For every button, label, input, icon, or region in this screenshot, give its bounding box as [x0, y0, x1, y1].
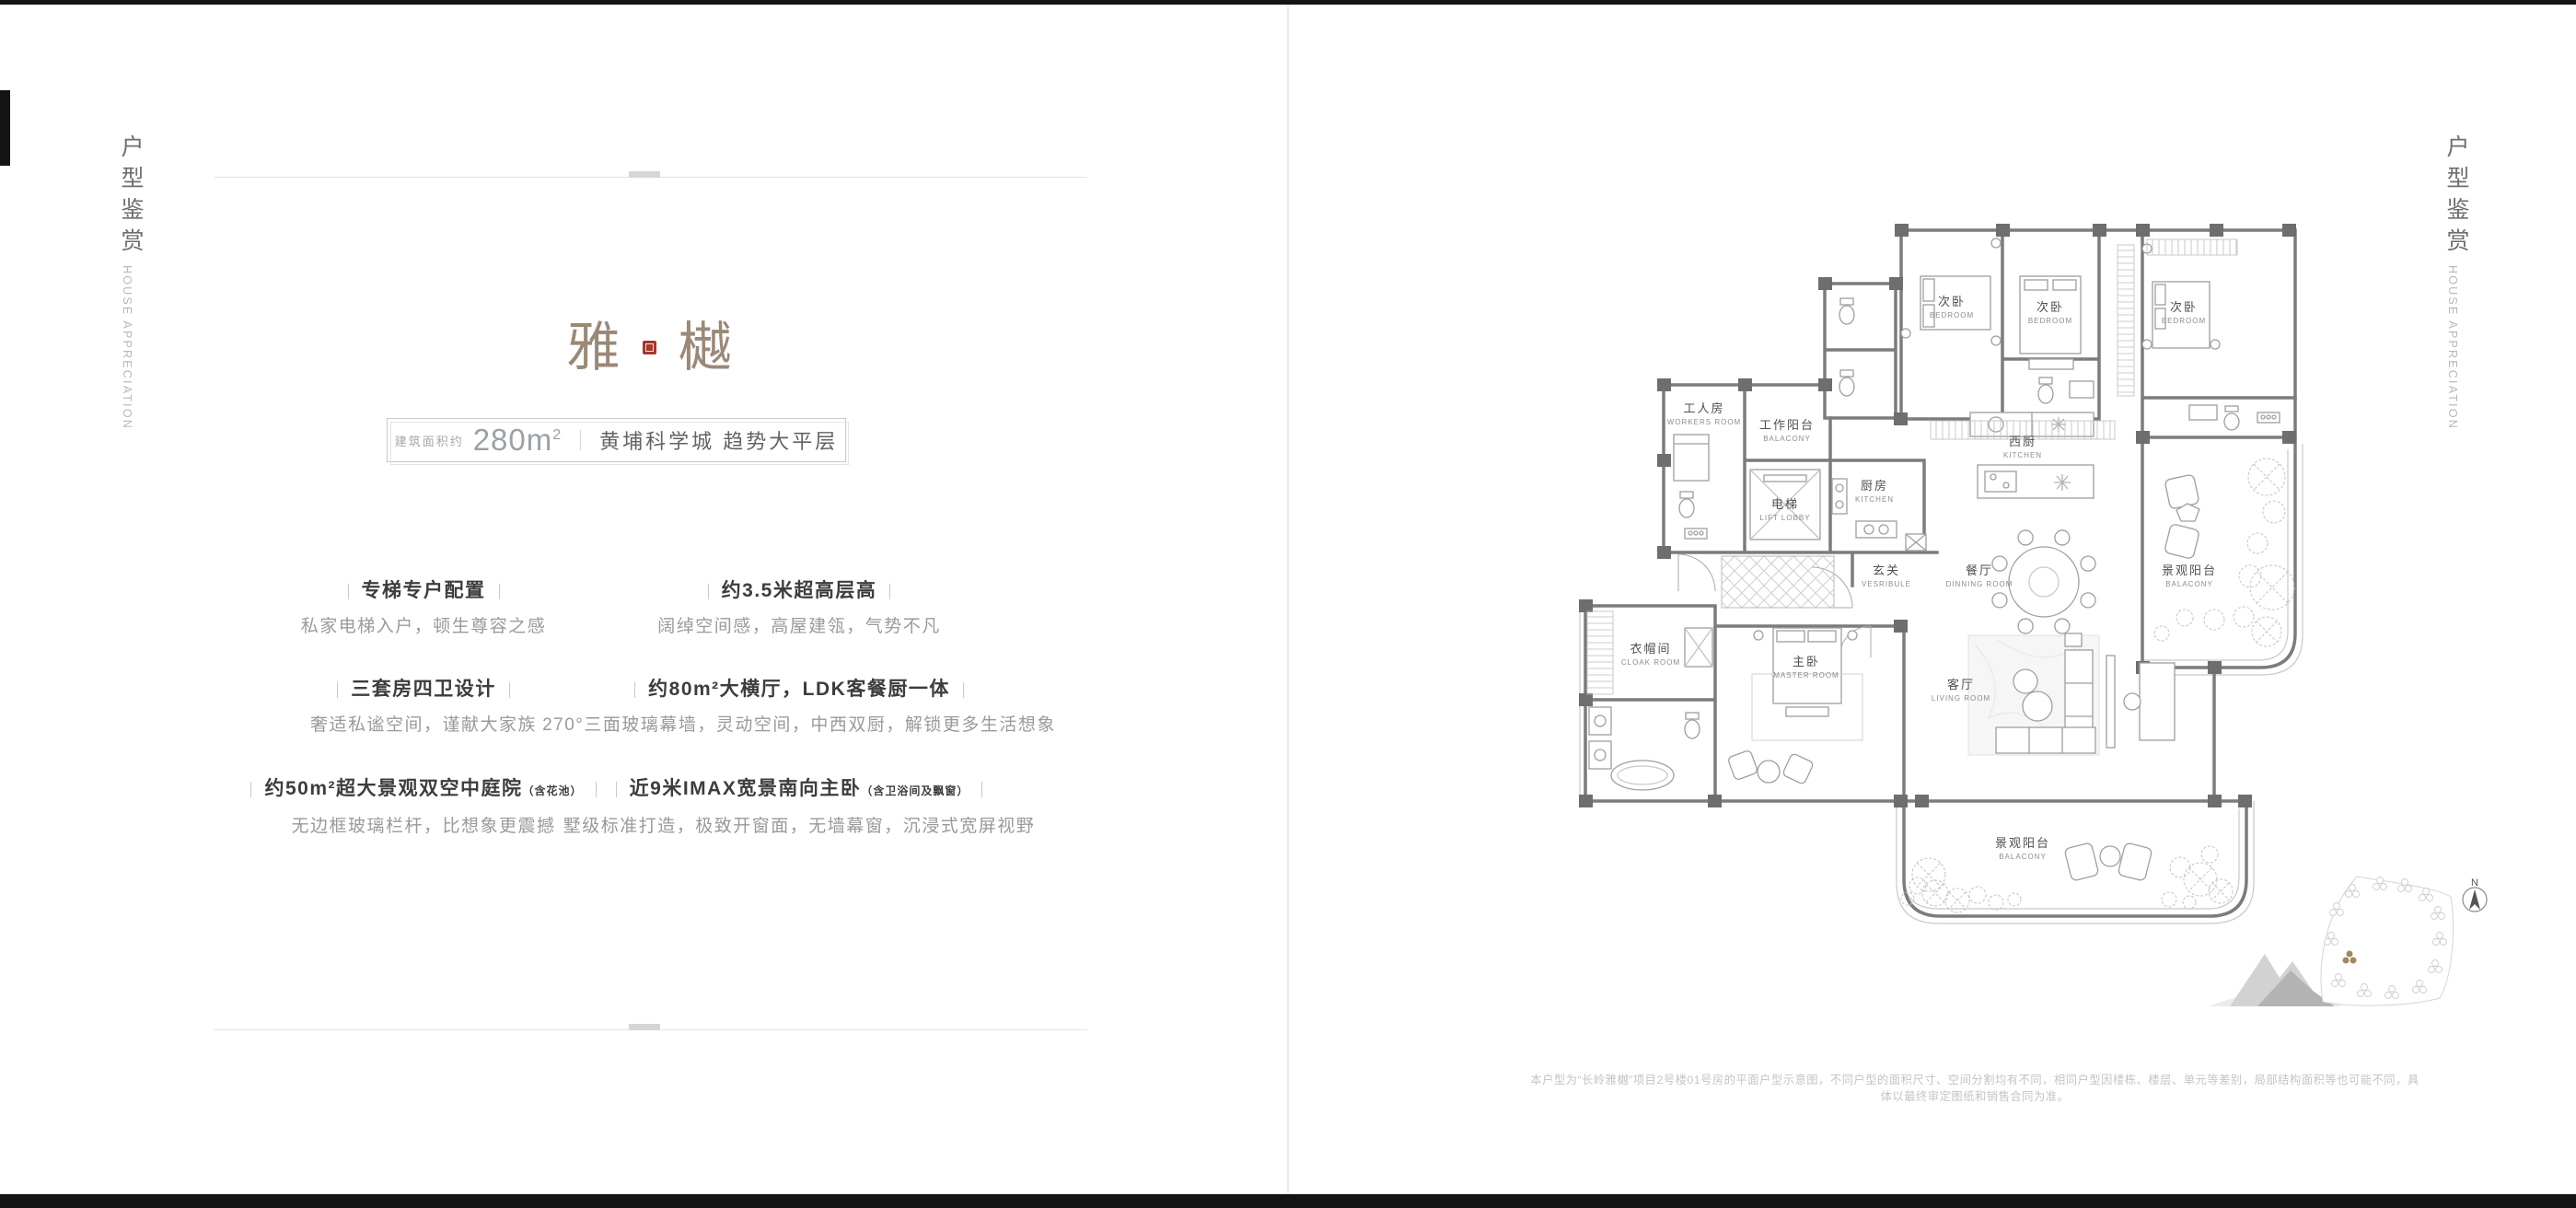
badge-location: 黄埔科学城 趋势大平层: [599, 425, 838, 455]
room-label: 厨房: [1861, 479, 1888, 493]
left-sidebar-title: 户型鉴赏: [114, 134, 147, 260]
compass-needle: [2469, 889, 2480, 910]
room-label-en: CLOAK ROOM: [1621, 658, 1680, 667]
area-label: 建筑面积约: [395, 432, 464, 449]
title-char-right: 樾: [679, 320, 732, 374]
room-label: 景观阳台: [1995, 836, 2050, 850]
feature-desc: 270°三面玻璃幕墙，灵动空间，中西双厨，解锁更多生活想象: [523, 711, 1075, 736]
room-label-en: LIFT LOBBY: [1759, 514, 1810, 522]
page-gutter-divider: [1287, 5, 1289, 1194]
room-label-en: MASTER ROOM: [1773, 671, 1839, 679]
room-label: 衣帽间: [1630, 642, 1671, 656]
room-label-en: DINNING ROOM: [1946, 580, 2013, 588]
bottom-rule-tab: [629, 1024, 660, 1030]
room-label: 次卧: [2170, 300, 2198, 314]
brochure-spread: 户型鉴赏 HOUSE APPRECIATION 户型鉴赏 HOUSE APPRE…: [0, 0, 2576, 1208]
left-sidebar-subtitle: HOUSE APPRECIATION: [121, 265, 133, 430]
room-label-en: BALACONY: [1999, 853, 2047, 861]
room-label-en: KITCHEN: [2003, 451, 2042, 459]
room-label-en: BEDROOM: [2162, 317, 2206, 325]
feature-suffix: （含卫浴间及飘窗）: [861, 784, 969, 797]
room-label: 工人房: [1683, 401, 1724, 415]
vestibule-rug: [1722, 556, 1834, 608]
seal-icon: [643, 341, 656, 354]
top-rule-tab: [629, 171, 660, 178]
feature-title: 近9米IMAX宽景南向主卧: [630, 778, 862, 799]
feature-title: 约80m²大横厅，LDK客餐厨一体: [648, 679, 950, 700]
room-label-en: BEDROOM: [2028, 317, 2072, 325]
title-char-left: 雅: [566, 320, 620, 374]
room-label: 餐厅: [1966, 563, 1993, 577]
floor-plan: N 次卧BEDROOM次卧BEDROOM次卧BEDROOM工人房WORKERS …: [1565, 203, 2495, 1077]
feature-title: 专梯专户配置: [362, 580, 486, 601]
page-title: 雅 樾: [502, 320, 796, 374]
feature-desc: 墅级标准打造，极致开窗面，无墙幕窗，沉浸式宽屏视野: [523, 812, 1075, 837]
room-label-en: WORKERS ROOM: [1667, 418, 1741, 426]
room-label: 景观阳台: [2162, 563, 2217, 577]
room-label-en: BALACONY: [2165, 580, 2213, 588]
area-value: 280m2: [473, 423, 562, 458]
feature-block: 近9米IMAX宽景南向主卧（含卫浴间及飘窗） 墅级标准打造，极致开窗面，无墙幕窗…: [523, 778, 1075, 837]
compass-north-label: N: [2471, 877, 2478, 889]
feature-title: 约3.5米超高层高: [722, 580, 877, 601]
room-label: 主卧: [1793, 655, 1820, 668]
room-label-en: KITCHEN: [1855, 495, 1894, 504]
room-label-en: VESRIBULE: [1862, 580, 1911, 588]
room-label: 次卧: [1938, 295, 1966, 308]
room-label: 客厅: [1947, 678, 1975, 691]
room-label-en: BEDROOM: [1930, 311, 1974, 319]
left-edge-tab: [0, 90, 10, 166]
room-label: 玄关: [1873, 563, 1900, 577]
furniture: [1589, 238, 2280, 881]
feature-desc: 阔绰空间感，高屋建瓴，气势不凡: [523, 612, 1075, 637]
bottom-border-bar: [0, 1194, 2576, 1208]
room-label: 次卧: [2036, 300, 2064, 314]
feature-title: 三套房四卫设计: [351, 679, 496, 700]
area-badge: 建筑面积约 280m2 黄埔科学城 趋势大平层: [387, 418, 846, 462]
disclaimer-text: 本户型为“长岭雅樾”项目2号楼01号房的平面户型示意图，不同户型的面积尺寸、空间…: [1528, 1071, 2421, 1104]
room-label-en: BALACONY: [1763, 435, 1811, 443]
feature-title: 约50m²超大景观双空中庭院: [264, 778, 522, 799]
site-diagram: N: [2210, 877, 2487, 1006]
room-label: 电梯: [1771, 497, 1799, 511]
room-label: 工作阳台: [1759, 418, 1815, 432]
badge-divider: [580, 430, 581, 450]
feature-block: 约3.5米超高层高 阔绰空间感，高屋建瓴，气势不凡: [523, 580, 1075, 637]
feature-block: 约80m²大横厅，LDK客餐厨一体 270°三面玻璃幕墙，灵动空间，中西双厨，解…: [523, 679, 1075, 736]
room-label-en: LIVING ROOM: [1932, 694, 1990, 703]
room-label: 西厨: [2009, 435, 2036, 448]
